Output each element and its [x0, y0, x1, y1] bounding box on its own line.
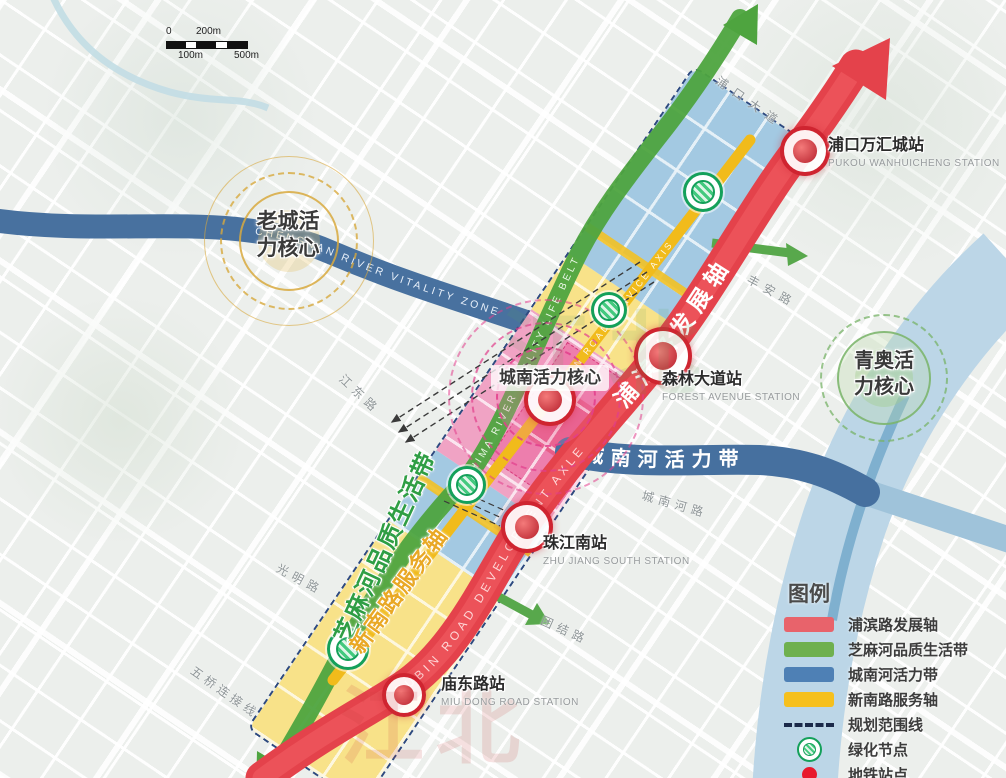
legend-label: 城南河活力带 [848, 664, 938, 685]
old-core-line1: 老城活 [218, 208, 358, 235]
river-continuation [865, 492, 1006, 540]
chengnan-core-label: 城南活力核心 [462, 365, 638, 391]
legend-item-chengnan: 城南河活力带 [780, 662, 1006, 687]
legend-item-zhima: 芝麻河品质生活带 [780, 637, 1006, 662]
station-dot [649, 342, 677, 370]
legend-item-boundary: 规划范围线 [780, 712, 1006, 737]
green-node-1 [683, 172, 723, 212]
station-name: 珠江南站 [543, 535, 690, 553]
legend-title: 图例 [788, 578, 1006, 608]
station-dot [538, 388, 563, 413]
scale-bar: 0 200m 100m 500m [162, 26, 272, 60]
green-node-3 [448, 466, 486, 504]
station-icon-miaodong [382, 673, 426, 717]
legend-swatch-dashed [784, 723, 834, 727]
legend-label: 规划范围线 [848, 714, 923, 735]
legend-metro-dot-icon [802, 767, 817, 778]
station-dot [793, 139, 817, 163]
legend-swatch-green [784, 642, 834, 657]
green-branch-1-arrow [786, 243, 808, 266]
legend-label: 绿化节点 [848, 739, 908, 760]
station-name-en: PUKOU WANHUICHENG STATION [828, 158, 1000, 169]
station-name: 庙东路站 [441, 676, 579, 694]
green-node-2 [591, 292, 627, 328]
legend-label: 地铁站点 [848, 764, 908, 778]
legend-label: 新南路服务轴 [848, 689, 938, 710]
station-label-forest: 森林大道站 FOREST AVENUE STATION [662, 371, 800, 403]
scale-500m: 500m [234, 50, 259, 61]
station-label-zhujiang: 珠江南站 ZHU JIANG SOUTH STATION [543, 535, 690, 567]
chengnan-core-text: 城南活力核心 [491, 365, 609, 391]
legend-swatch-red [784, 617, 834, 632]
qingao-core-label: 青奥活 力核心 [814, 348, 954, 400]
legend-item-pubin: 浦滨路发展轴 [780, 612, 1006, 637]
qingao-line1: 青奥活 [814, 348, 954, 374]
station-label-miaodong: 庙东路站 MIU DONG ROAD STATION [441, 676, 579, 708]
qingao-line2: 力核心 [814, 374, 954, 400]
legend-label: 浦滨路发展轴 [848, 614, 938, 635]
station-name-en: FOREST AVENUE STATION [662, 392, 800, 403]
legend-swatch-blue [784, 667, 834, 682]
green-node-hatch [598, 299, 619, 320]
station-dot [515, 515, 540, 540]
legend-swatch-yellow [784, 692, 834, 707]
green-node-hatch [456, 474, 479, 497]
scale-bar-segments [166, 41, 248, 49]
station-name-en: ZHU JIANG SOUTH STATION [543, 556, 690, 567]
station-label-pukou: 浦口万汇城站 PUKOU WANHUICHENG STATION [828, 137, 1000, 169]
legend-label: 芝麻河品质生活带 [848, 639, 968, 660]
legend-item-xinnan: 新南路服务轴 [780, 687, 1006, 712]
legend-green-node-icon [797, 737, 822, 762]
scale-0: 0 [166, 26, 172, 37]
legend-item-metro: 地铁站点 [780, 762, 1006, 778]
station-dot [394, 685, 414, 705]
scale-100m: 100m [178, 50, 203, 61]
station-icon-pukou [780, 126, 830, 176]
green-node-hatch [691, 180, 715, 204]
legend: 图例 浦滨路发展轴 芝麻河品质生活带 城南河活力带 新南路服务轴 规划范围线 绿… [780, 578, 1006, 778]
planning-map: CHENGNAN RIVER VITALITY ZONE ZHIMA RIVER… [0, 0, 1006, 778]
station-name: 森林大道站 [662, 371, 800, 389]
station-name: 浦口万汇城站 [828, 137, 1000, 155]
old-core-label: 老城活 力核心 [218, 208, 358, 263]
scale-200m: 200m [196, 26, 221, 37]
legend-item-greennode: 绿化节点 [780, 737, 1006, 762]
old-core-line2: 力核心 [218, 235, 358, 262]
station-name-en: MIU DONG ROAD STATION [441, 697, 579, 708]
